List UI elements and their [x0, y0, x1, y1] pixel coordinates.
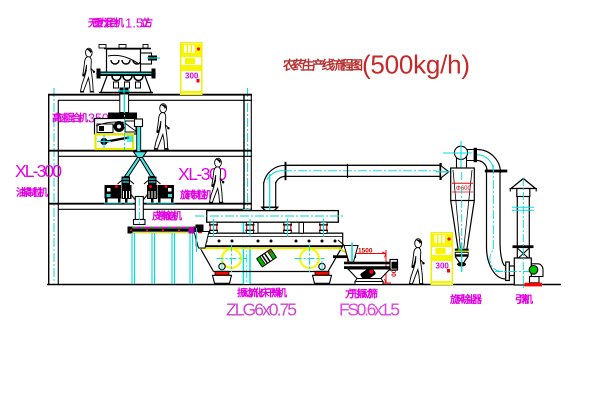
svg-text:ZLG6x0.75: ZLG6x0.75 [226, 300, 297, 320]
svg-text:Φ600: Φ600 [456, 186, 471, 192]
svg-text:旋转制粒机: 旋转制粒机 [179, 189, 212, 202]
svg-text:FS0.6x1.5: FS0.6x1.5 [339, 300, 400, 320]
svg-text:(500kg/h): (500kg/h) [362, 50, 470, 80]
svg-text:XL-300: XL-300 [15, 161, 62, 181]
svg-text:农药生产线流程图: 农药生产线流程图 [282, 58, 363, 73]
svg-text:皮带输送机: 皮带输送机 [151, 210, 182, 223]
svg-text:引风机: 引风机 [515, 293, 533, 306]
svg-text:油桨制粒机: 油桨制粒机 [16, 186, 48, 199]
svg-text:无重力混合机: 无重力混合机 [87, 17, 124, 30]
svg-text:旋风除尘器: 旋风除尘器 [449, 293, 483, 306]
svg-text:立方: 立方 [140, 17, 153, 30]
svg-text:1500: 1500 [358, 248, 373, 255]
svg-text:振动流化床干燥机: 振动流化床干燥机 [237, 287, 287, 300]
svg-text:高速混合机: 高速混合机 [52, 112, 88, 125]
